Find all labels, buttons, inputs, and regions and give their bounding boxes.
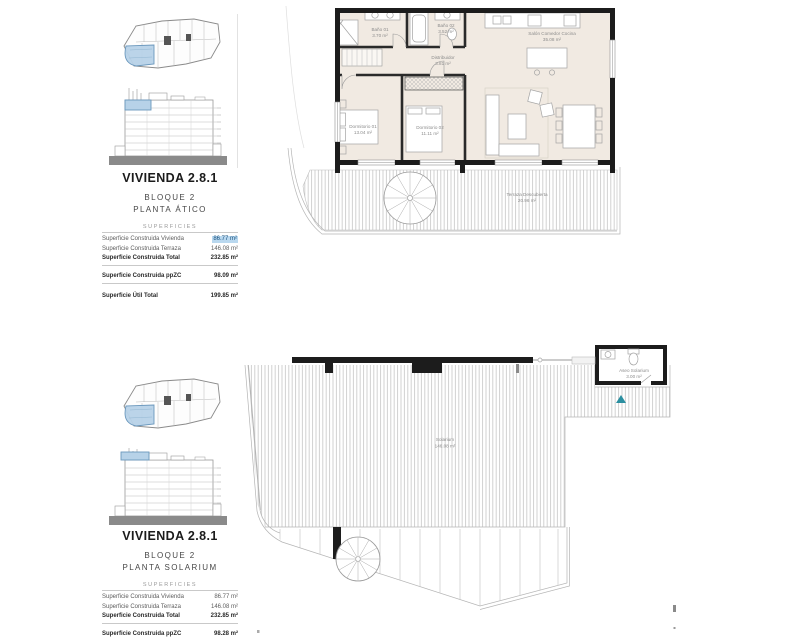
roof-box-2 (171, 96, 184, 100)
wall-stub-2 (412, 363, 442, 373)
parapet (195, 457, 205, 460)
solarium-terrace: Solarium 146.08 m² (245, 357, 670, 610)
dorm1-label: Dormitorio 01 (349, 124, 377, 129)
row-label: Superficie Construida Total (102, 255, 180, 262)
pergola-lines (129, 88, 141, 100)
highlighted-unit (125, 45, 154, 66)
distribuidor-label: Distribuidor (431, 55, 455, 60)
core-block-2 (186, 394, 191, 401)
unit-subtitle: BLOQUE 2 PLANTA ÁTICO (100, 192, 240, 215)
threshold-step (572, 357, 595, 364)
solarium-top-wall (292, 357, 533, 363)
railing-posts (280, 529, 558, 607)
key-plan-atico (112, 16, 230, 86)
divider (102, 590, 238, 591)
divider (102, 265, 238, 266)
side-wing-left (115, 506, 125, 516)
coffee-table (508, 114, 526, 139)
room-aseo-solarium: Aseo Solarium 3.00 m² (595, 345, 667, 385)
ground-base (109, 156, 227, 165)
dining-table (563, 105, 595, 148)
highlighted-floor-unit (121, 452, 149, 460)
ground-base (109, 516, 227, 525)
block-label: BLOQUE 2 (100, 550, 240, 562)
room-dorm2: Dormitorio 02 11.11 m² (406, 106, 444, 152)
table-row: Superficie Construida Terraza 146.08 m² (100, 244, 240, 253)
surfaces-header: SUPERFICIES (100, 224, 240, 230)
dorm1-area: 13.04 m² (354, 130, 373, 135)
row-label: Superficie Construida Terraza (102, 246, 181, 253)
salon-label: Salón Comedor Cocina (528, 31, 576, 36)
spiral-stair-pole (408, 196, 413, 201)
row-label: Superficie Construida Terraza (102, 604, 181, 611)
roof-box (149, 93, 167, 100)
floor-label: PLANTA ÁTICO (100, 204, 240, 216)
table-row: Superficie Construida Terraza 146.08 m² (100, 602, 240, 611)
row-label: Superficie Construida Total (102, 613, 180, 620)
entry-stairs (342, 49, 382, 66)
solarium-hatch-main (248, 365, 565, 527)
aseo-area: 3.00 m² (626, 374, 642, 379)
core-block (164, 36, 171, 45)
info-panel-solarium: VIVIENDA 2.8.1 BLOQUE 2 PLANTA SOLARIUM … (100, 529, 240, 640)
hose-bib (516, 364, 519, 373)
row-value: 232.85 m² (211, 255, 238, 262)
dorm2-label: Dormitorio 02 (416, 125, 444, 130)
compass-mark (257, 630, 260, 633)
armchair (528, 90, 543, 105)
table-row-ppzc: Superficie Construida ppZC 98.09 m² (100, 272, 240, 281)
elevation-atico (105, 84, 233, 172)
dorm2-area: 11.11 m² (421, 131, 439, 136)
info-panel-atico: VIVIENDA 2.8.1 BLOQUE 2 PLANTA ÁTICO SUP… (100, 171, 240, 302)
row-label: Superficie Construida Vivienda (102, 236, 184, 243)
solarium-label: Solarium (436, 437, 454, 442)
table-row-total: Superficie Construida Total 232.85 m² (100, 254, 240, 263)
core-block (164, 396, 171, 405)
bano1-area: 3.70 m² (372, 33, 388, 38)
railing-joint (538, 358, 542, 362)
key-plan-solarium (112, 376, 230, 446)
solarium-area: 146.08 m² (435, 444, 456, 449)
floor-plan-atico: Terraza Descubierta 20.96 m² Baño 01 3.7… (280, 0, 680, 250)
elevation-solarium (105, 444, 233, 532)
highlighted-unit (125, 405, 154, 426)
row-label: Superficie Construida ppZC (102, 631, 181, 638)
kitchen-island (527, 48, 567, 68)
plan-sheet: VIVIENDA 2.8.1 BLOQUE 2 PLANTA ÁTICO SUP… (0, 0, 800, 640)
wall-stub (325, 363, 333, 373)
table-row-ppzc: Superficie Construida ppZC 98.28 m² (100, 630, 240, 639)
north-dot (674, 627, 676, 629)
surfaces-header: SUPERFICIES (100, 582, 240, 588)
divider (102, 232, 238, 233)
divider (102, 283, 238, 284)
terraza-area: 20.96 m² (518, 198, 537, 203)
row-value: 199.85 m² (211, 293, 238, 300)
unit-subtitle: BLOQUE 2 PLANTA SOLARIUM (100, 550, 240, 573)
row-label: Superficie Construida ppZC (102, 273, 181, 280)
bano2-area: 3.52 m² (438, 29, 454, 34)
side-wing-left (115, 146, 125, 156)
table-row-total: Superficie Construida Total 232.85 m² (100, 612, 240, 621)
solarium-hatch-under-aseo (595, 387, 670, 417)
roof-box (149, 453, 167, 460)
aseo-toilet (629, 353, 638, 365)
unit-title: VIVIENDA 2.8.1 (100, 171, 240, 185)
projection-line (286, 6, 304, 148)
core-block-2 (186, 34, 191, 41)
floor-ticks (217, 108, 221, 150)
row-value: 98.09 m² (214, 273, 238, 280)
table-row: Superficie Construida Vivienda 86.77 m² (100, 235, 240, 244)
bano1-label: Baño 01 (371, 27, 389, 32)
roof-box-2 (171, 456, 184, 460)
solarium-hatch-strip (565, 365, 595, 417)
distribuidor-area: 3.81 m² (435, 61, 451, 66)
terraza-label: Terraza Descubierta (506, 192, 548, 197)
terrace-hatch (303, 170, 617, 230)
side-wing-right (213, 504, 221, 516)
table-row: Superficie Construida Vivienda 86.77 m² (100, 593, 240, 602)
armchair-2 (540, 103, 554, 117)
spiral-stair-pole (356, 557, 361, 562)
highlighted-floor-unit (125, 100, 151, 110)
floor-plan-solarium: Solarium 146.08 m² Aseo Solarium 3.00 m² (230, 345, 710, 635)
row-label: Superficie Útil Total (102, 293, 158, 300)
row-value-highlighted[interactable]: 86.77 m² (212, 236, 238, 243)
sofa (486, 95, 499, 155)
scale-mark (673, 605, 676, 612)
divider (102, 623, 238, 624)
table-row-util: Superficie Útil Total 199.85 m² (100, 292, 240, 301)
row-label: Superficie Construida Vivienda (102, 594, 184, 601)
side-wing-right (213, 144, 221, 156)
unit-title: VIVIENDA 2.8.1 (100, 529, 240, 543)
floor-label: PLANTA SOLARIUM (100, 562, 240, 574)
wardrobe (405, 77, 463, 90)
aseo-label: Aseo Solarium (619, 368, 649, 373)
salon-area: 35.08 m² (543, 37, 562, 42)
sofa-2 (499, 144, 539, 156)
row-value: 146.08 m² (211, 246, 238, 253)
block-label: BLOQUE 2 (100, 192, 240, 204)
bano2-label: Baño 02 (437, 23, 455, 28)
panel-divider-line (237, 14, 238, 168)
parapet (195, 97, 205, 100)
